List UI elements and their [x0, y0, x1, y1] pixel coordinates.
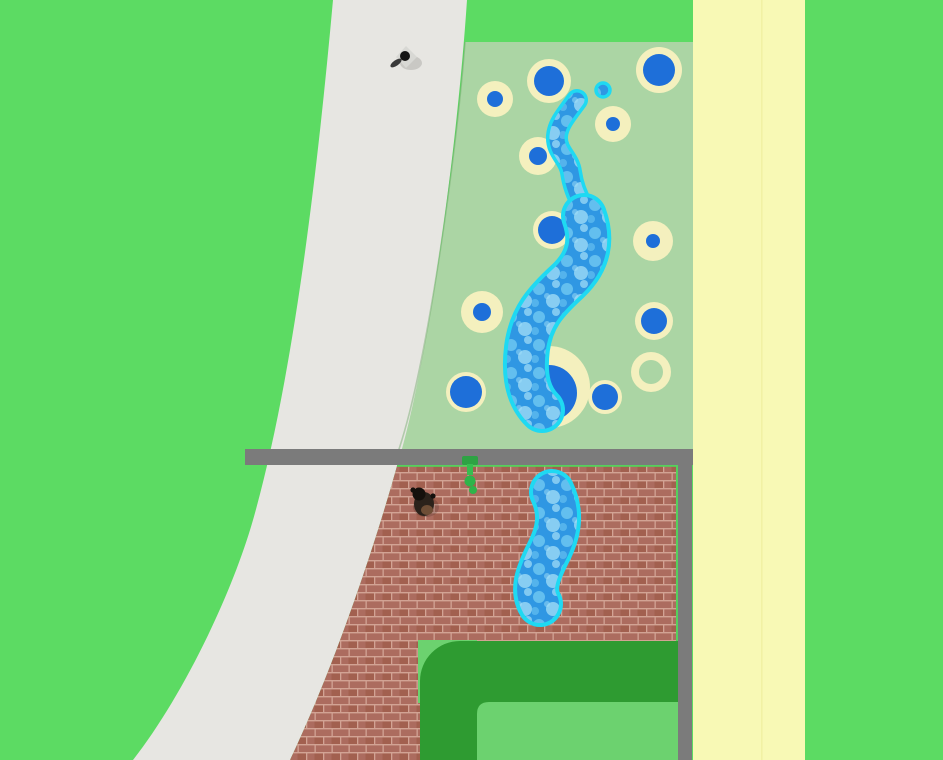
round-pool[interactable]	[636, 47, 682, 93]
green-figure-top	[462, 456, 478, 465]
pool-water	[529, 147, 547, 165]
green-figure-stem	[467, 464, 473, 475]
wall-vertical	[678, 449, 692, 760]
round-pool[interactable]	[446, 372, 486, 412]
pool-water	[487, 91, 503, 107]
yellow-road-seam	[761, 0, 763, 760]
green-figure-blob	[465, 476, 476, 487]
pool-water	[534, 66, 564, 96]
round-pool[interactable]	[588, 380, 622, 414]
round-pool[interactable]	[595, 106, 631, 142]
pool-water	[606, 117, 620, 131]
dog-tail	[430, 493, 435, 498]
green-figure-blob	[469, 486, 477, 494]
round-pool[interactable]	[635, 302, 673, 340]
pool-water	[450, 376, 482, 408]
person-head	[400, 51, 410, 61]
pool-water	[473, 303, 491, 321]
pool-water	[592, 384, 618, 410]
pool-water	[641, 308, 667, 334]
empty-pool[interactable]	[631, 352, 671, 392]
dog-patch	[421, 505, 433, 515]
round-pool[interactable]	[477, 81, 513, 117]
round-pool[interactable]	[527, 59, 571, 103]
mini-pool[interactable]	[596, 83, 610, 97]
game-viewport	[0, 0, 943, 760]
brick-yard-pool[interactable]	[536, 492, 558, 604]
scene-canvas	[0, 0, 943, 760]
pool-water	[646, 234, 660, 248]
round-pool[interactable]	[633, 221, 673, 261]
pool-water	[643, 54, 675, 86]
brick-pool-water	[536, 492, 558, 604]
round-pool[interactable]	[461, 291, 503, 333]
yellow-road	[693, 0, 805, 760]
dog-ear	[410, 487, 415, 492]
track-infield-grass	[470, 695, 678, 760]
empty-pool-center	[639, 360, 663, 384]
